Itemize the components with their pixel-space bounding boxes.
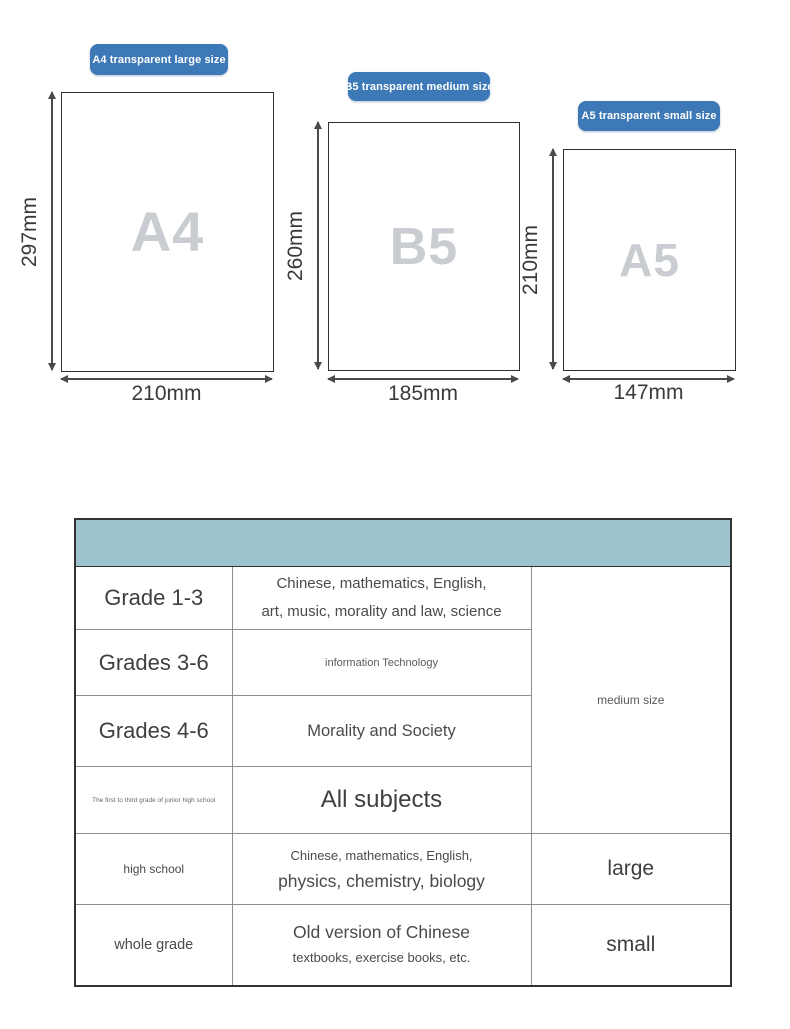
grade-label: Grade 1-3: [82, 585, 226, 611]
grade-cell: Grades 3-6: [75, 630, 232, 696]
b5-width-label: 185mm: [328, 382, 518, 406]
subjects-cell: Morality and Society: [232, 696, 531, 767]
subjects-line: Chinese, mathematics, English,: [239, 844, 525, 869]
subjects-line: Chinese, mathematics, English,: [239, 570, 525, 599]
a5-width-label: 147mm: [563, 381, 734, 405]
subjects-line: physics, chemistry, biology: [239, 868, 525, 894]
b5-width-arrow: [328, 378, 518, 380]
subjects-cell: Chinese, mathematics, English, physics, …: [232, 834, 531, 905]
grade-cell: Grade 1-3: [75, 567, 232, 630]
subjects-line: Morality and Society: [239, 722, 525, 741]
table-header-bar: [75, 519, 731, 567]
b5-watermark-label: B5: [390, 221, 458, 273]
grade-label: whole grade: [82, 937, 226, 953]
a4-height-label: 297mm: [18, 172, 42, 292]
subjects-line: All subjects: [239, 786, 525, 814]
grade-label: Grades 3-6: [82, 650, 226, 676]
b5-height-arrow: [317, 122, 319, 369]
a5-sheet: A5: [563, 149, 736, 371]
grade-label: Grades 4-6: [82, 718, 226, 744]
grade-cell: whole grade: [75, 905, 232, 986]
table-row: whole grade Old version of Chinese textb…: [75, 905, 731, 986]
a5-watermark-label: A5: [619, 237, 680, 283]
a4-width-arrow: [61, 378, 272, 380]
grade-cell: Grades 4-6: [75, 696, 232, 767]
subjects-line: Old version of Chinese: [239, 919, 525, 945]
a5-height-label: 210mm: [519, 200, 543, 320]
a4-width-label: 210mm: [61, 382, 272, 406]
size-cell: large: [531, 834, 731, 905]
size-label: small: [538, 933, 725, 957]
grade-cell: The first to third grade of junior high …: [75, 767, 232, 834]
grade-label: high school: [82, 862, 226, 876]
subjects-line: art, music, morality and law, science: [239, 598, 525, 627]
subjects-line: textbooks, exercise books, etc.: [239, 946, 525, 971]
subjects-cell: information Technology: [232, 630, 531, 696]
size-cell-merged: medium size: [531, 567, 731, 834]
a4-watermark-label: A4: [131, 204, 205, 260]
a5-width-arrow: [563, 378, 734, 380]
b5-height-label: 260mm: [284, 186, 308, 306]
subjects-line: information Technology: [239, 657, 525, 669]
size-label: large: [538, 857, 725, 881]
grade-label: The first to third grade of junior high …: [82, 797, 226, 804]
a4-height-arrow: [51, 92, 53, 370]
a5-badge: A5 transparent small size: [578, 101, 720, 131]
subjects-cell: Old version of Chinese textbooks, exerci…: [232, 905, 531, 986]
grade-subject-table: Grade 1-3 Chinese, mathematics, English,…: [74, 518, 732, 987]
a4-sheet: A4: [61, 92, 274, 372]
b5-badge: B5 transparent medium size: [348, 72, 490, 101]
subjects-cell: Chinese, mathematics, English, art, musi…: [232, 567, 531, 630]
table-row: high school Chinese, mathematics, Englis…: [75, 834, 731, 905]
paper-size-infographic: A4 transparent large size A4 297mm 210mm…: [0, 0, 790, 1029]
size-cell: small: [531, 905, 731, 986]
a5-height-arrow: [552, 149, 554, 369]
table-row: Grade 1-3 Chinese, mathematics, English,…: [75, 567, 731, 630]
grade-cell: high school: [75, 834, 232, 905]
b5-sheet: B5: [328, 122, 520, 371]
a4-badge: A4 transparent large size: [90, 44, 228, 75]
table-header-row: [75, 519, 731, 567]
size-label: medium size: [538, 693, 725, 707]
subjects-cell: All subjects: [232, 767, 531, 834]
